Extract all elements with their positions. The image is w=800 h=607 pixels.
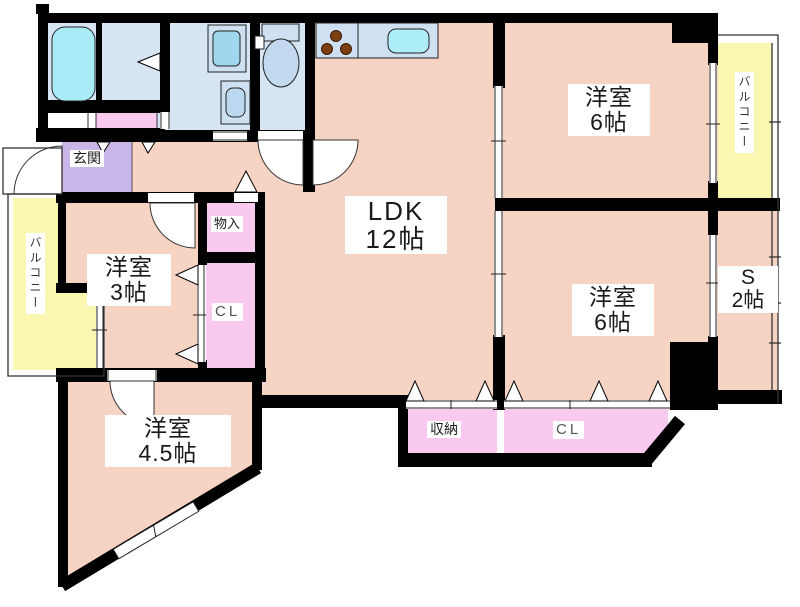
- closet-south-floor: [504, 408, 668, 456]
- door-opening-bedroom-w: [148, 193, 194, 202]
- shoe-cabinet: [96, 112, 157, 130]
- stove-burner-3: [341, 44, 352, 55]
- floorplan-canvas: LDK 12帖 洋室 6帖 洋室 6帖 S 2帖 洋室 3帖 洋室 4.5帖 玄…: [0, 0, 800, 607]
- stove-burner-1: [331, 31, 342, 42]
- room-label-balcony-northeast: バルコニー: [735, 72, 754, 153]
- toilet-handle: [255, 36, 264, 49]
- room-label-ldk: LDK 12帖: [345, 196, 447, 254]
- washer-basin: [226, 88, 245, 117]
- kitchen-sink: [388, 29, 429, 53]
- room-label-storage-south: 収納: [427, 421, 461, 438]
- stove-burner-2: [322, 44, 333, 55]
- door-opening-hall-storage: [234, 193, 258, 202]
- bathtub: [52, 27, 95, 101]
- door-arc-entrance: [14, 146, 62, 194]
- room-label-bedroom-w: 洋室 3帖: [87, 254, 171, 306]
- room-label-ldk-name: LDK: [348, 197, 444, 225]
- door-opening-bedroom-sw: [107, 370, 157, 381]
- toilet-bowl: [263, 39, 299, 87]
- room-label-ldk-size: 12帖: [348, 225, 444, 253]
- vanity-basin: [213, 31, 240, 66]
- room-label-bedroom-ne: 洋室 6帖: [568, 84, 650, 136]
- toilet-tank: [262, 24, 299, 41]
- room-label-hall-storage: 物入: [211, 216, 243, 232]
- room-label-bedroom-e: 洋室 6帖: [572, 284, 654, 336]
- entrance-side-box: [47, 112, 88, 130]
- room-label-closet-west: CL: [212, 303, 243, 321]
- room-label-entrance: 玄関: [70, 150, 104, 167]
- room-label-closet-south: CL: [553, 421, 584, 439]
- room-label-service: S 2帖: [718, 266, 778, 313]
- room-label-bedroom-sw: 洋室 4.5帖: [105, 415, 231, 467]
- room-label-balcony-west: バルコニー: [26, 233, 45, 314]
